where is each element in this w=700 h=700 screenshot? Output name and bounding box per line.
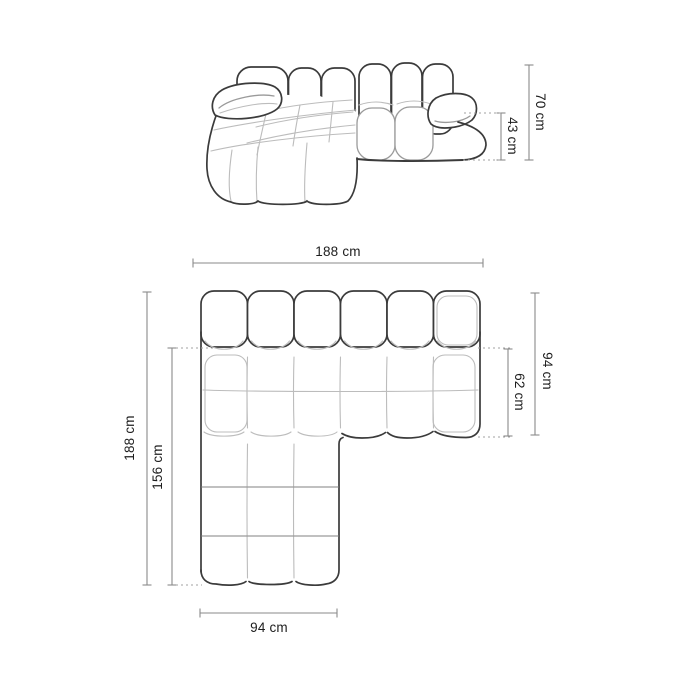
dimension-label-chaise-width: 94 cm — [241, 620, 297, 636]
diagram-svg — [0, 0, 700, 700]
front-view-drawing — [207, 63, 486, 204]
dimension-label-chaise-depth: 156 cm — [150, 439, 166, 495]
dimension-label-side-depth: 94 cm — [539, 343, 555, 399]
front-seat-cushion — [357, 108, 395, 160]
dimension-label-seat-depth: 62 cm — [511, 364, 527, 420]
top-view-drawing — [201, 291, 480, 585]
dimension-label-total-depth: 188 cm — [122, 410, 138, 466]
plan-back-cushion — [294, 291, 341, 347]
plan-chaise-tuft-lines — [202, 487, 338, 536]
plan-chaise-seams — [247, 444, 294, 578]
dim-line-chaise-width — [200, 609, 337, 618]
front-right-bolster — [428, 94, 476, 128]
dimension-label-seat-height: 43 cm — [504, 108, 520, 164]
front-right-arm — [458, 122, 486, 160]
plan-back-cushion — [248, 291, 295, 347]
front-left-bolster — [212, 83, 281, 119]
plan-back-cushion — [201, 291, 248, 347]
plan-chaise-outline — [201, 438, 343, 586]
dimension-label-total-width: 188 cm — [310, 244, 366, 260]
sofa-dimension-diagram: 70 cm 43 cm 188 cm 94 cm 62 cm 188 cm 15… — [0, 0, 700, 700]
dimension-label-total-height: 70 cm — [532, 84, 548, 140]
plan-back-cushion — [387, 291, 434, 347]
dim-line-seat-depth — [478, 348, 513, 437]
dim-line-chaise-depth — [168, 348, 217, 585]
plan-back-cushion — [341, 291, 388, 347]
